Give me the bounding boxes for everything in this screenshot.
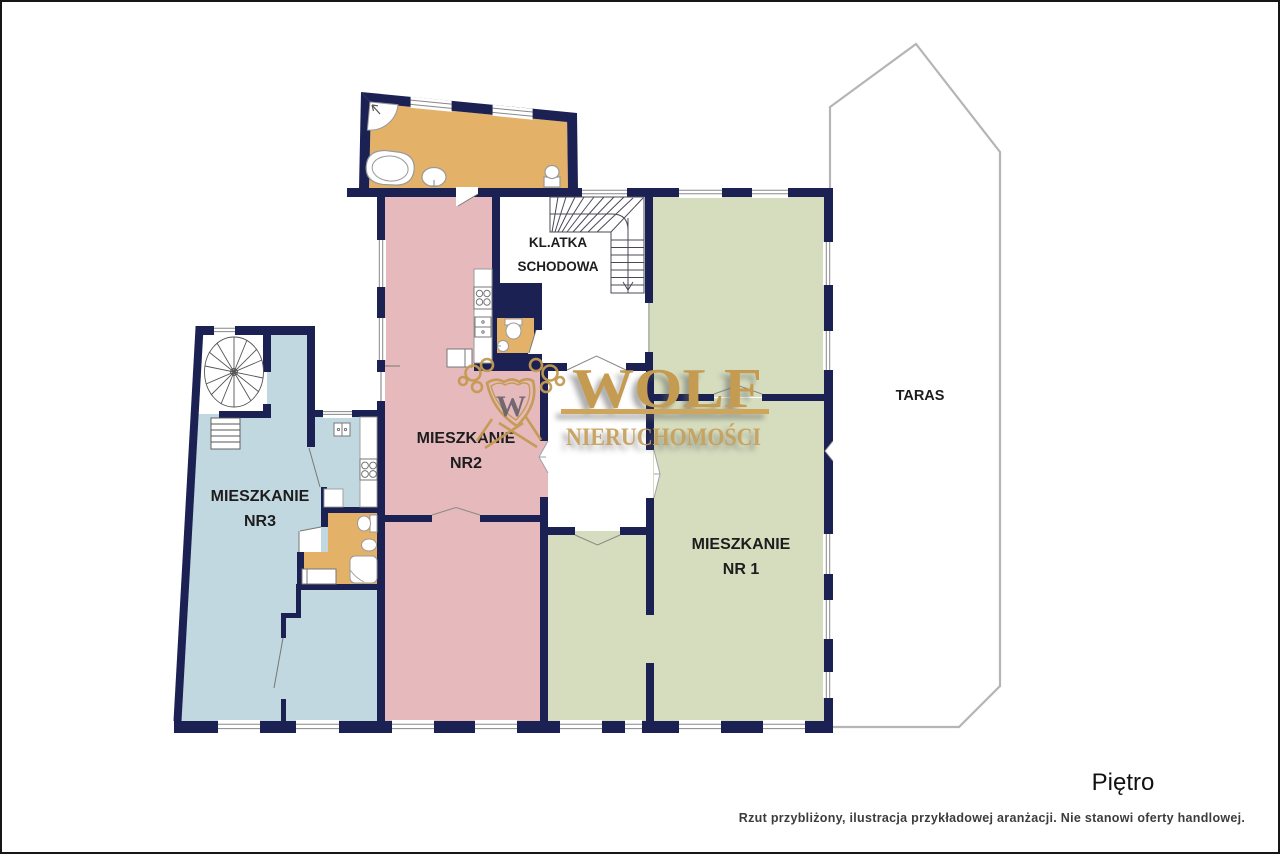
svg-text:Rzut przybliżony, ilustracja p: Rzut przybliżony, ilustracja przykładowe…	[739, 811, 1245, 825]
svg-text:MIESZKANIE: MIESZKANIE	[211, 488, 310, 505]
svg-text:NR3: NR3	[244, 513, 276, 530]
svg-text:KL.ATKA: KL.ATKA	[529, 235, 587, 250]
svg-text:MIESZKANIE: MIESZKANIE	[692, 536, 791, 553]
svg-text:NR 1: NR 1	[723, 561, 760, 578]
svg-text:NR2: NR2	[450, 455, 482, 472]
svg-text:TARAS: TARAS	[896, 388, 945, 404]
svg-text:Piętro: Piętro	[1092, 769, 1155, 796]
svg-text:NIERUCHOMOŚCI: NIERUCHOMOŚCI	[566, 423, 761, 451]
svg-text:W: W	[496, 390, 526, 423]
svg-text:SCHODOWA: SCHODOWA	[518, 259, 599, 274]
